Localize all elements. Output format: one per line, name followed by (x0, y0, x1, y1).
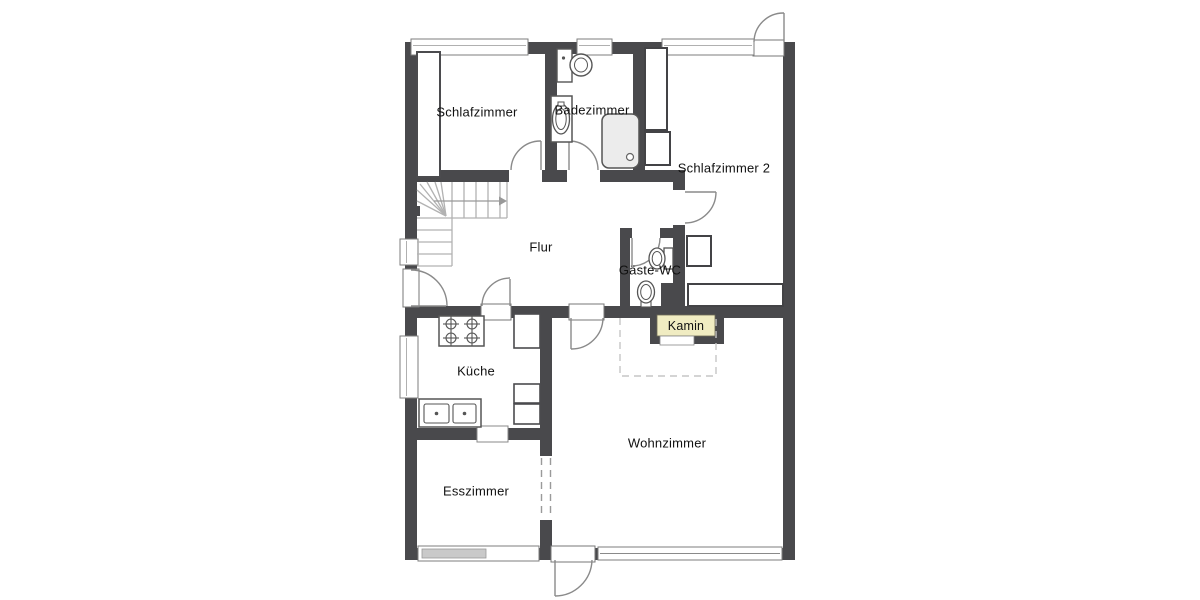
door-arc-badezimmer (569, 141, 598, 170)
door-leaf-entrance (403, 269, 419, 307)
window-kueche (400, 336, 418, 398)
fireplace-label: Kamin (668, 319, 704, 333)
shower-icon (602, 114, 639, 168)
door-arc-kueche (482, 278, 510, 306)
passage-kueche-esszimmer (477, 426, 508, 442)
floor-plan: Schlafzimmer Badezimmer Schlafzimmer 2 F… (0, 0, 1200, 600)
door-leaf-terrace (551, 546, 595, 562)
room-label-kueche: Küche (457, 364, 495, 379)
closet-icon (645, 48, 667, 130)
room-label-schlafzimmer2: Schlafzimmer 2 (678, 161, 770, 176)
door-leaf-top-right (753, 40, 784, 56)
wardrobe-schlafzimmer2 (688, 284, 783, 306)
wall-flur-top (405, 170, 685, 182)
door-arc-wohnzimmer (571, 318, 603, 349)
door-leaf-kueche (481, 304, 511, 320)
door-leaf-wohnzimmer (569, 304, 604, 320)
window-schlafzimmer2 (662, 39, 754, 55)
door-arc-terrace (555, 560, 592, 596)
stove-icon (439, 316, 484, 346)
door-arc-schlafzimmer (511, 141, 541, 170)
room-label-wohnzimmer: Wohnzimmer (628, 436, 706, 451)
window-sill-gray (422, 549, 486, 558)
room-label-gaeste-wc: Gäste-WC (619, 263, 681, 278)
door-gap-badezimmer (567, 168, 600, 184)
hearth-opening (660, 336, 694, 345)
stairs-arrow (499, 197, 507, 206)
closet-icon (645, 132, 670, 165)
floor-plan-drawing (0, 0, 1200, 600)
door-gap-schlafzimmer (509, 168, 542, 184)
room-label-badezimmer: Badezimmer (555, 103, 630, 118)
room-label-esszimmer: Esszimmer (443, 484, 509, 499)
stair-start-marker (412, 206, 420, 216)
door-arc-top-right (754, 13, 784, 42)
window-flur (400, 239, 418, 265)
door-arc-schlafzimmer2 (685, 192, 716, 223)
wc-sink-icon (638, 281, 655, 307)
door-gap-wc (632, 226, 660, 240)
dashed-features (542, 318, 717, 518)
window-badezimmer (577, 39, 612, 55)
stairs-icon (417, 182, 507, 266)
room-label-flur: Flur (529, 240, 552, 255)
door-gap-schlafzimmer2 (671, 190, 687, 225)
kitchen-sink-icon (419, 399, 481, 427)
room-label-schlafzimmer: Schlafzimmer (436, 105, 517, 120)
kitchen-counter-icons (514, 314, 540, 424)
wall-wc-stub (661, 283, 673, 308)
wall-right (783, 42, 795, 560)
cabinet-icon (687, 236, 711, 266)
